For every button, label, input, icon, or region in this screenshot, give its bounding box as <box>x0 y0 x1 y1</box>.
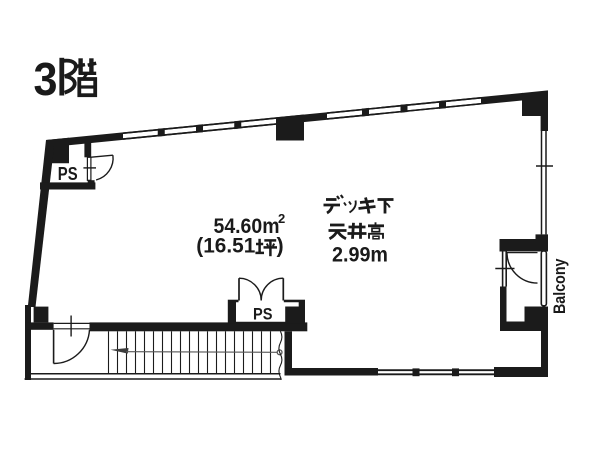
svg-text:PS: PS <box>58 163 78 184</box>
svg-text:2: 2 <box>278 211 285 226</box>
svg-text:PS: PS <box>253 305 273 324</box>
svg-text:2.99m: 2.99m <box>332 243 388 267</box>
svg-text:): ) <box>277 234 284 258</box>
svg-text:(16.51: (16.51 <box>196 234 255 258</box>
svg-text:3: 3 <box>34 53 58 105</box>
svg-text:Balcony: Balcony <box>550 258 569 314</box>
